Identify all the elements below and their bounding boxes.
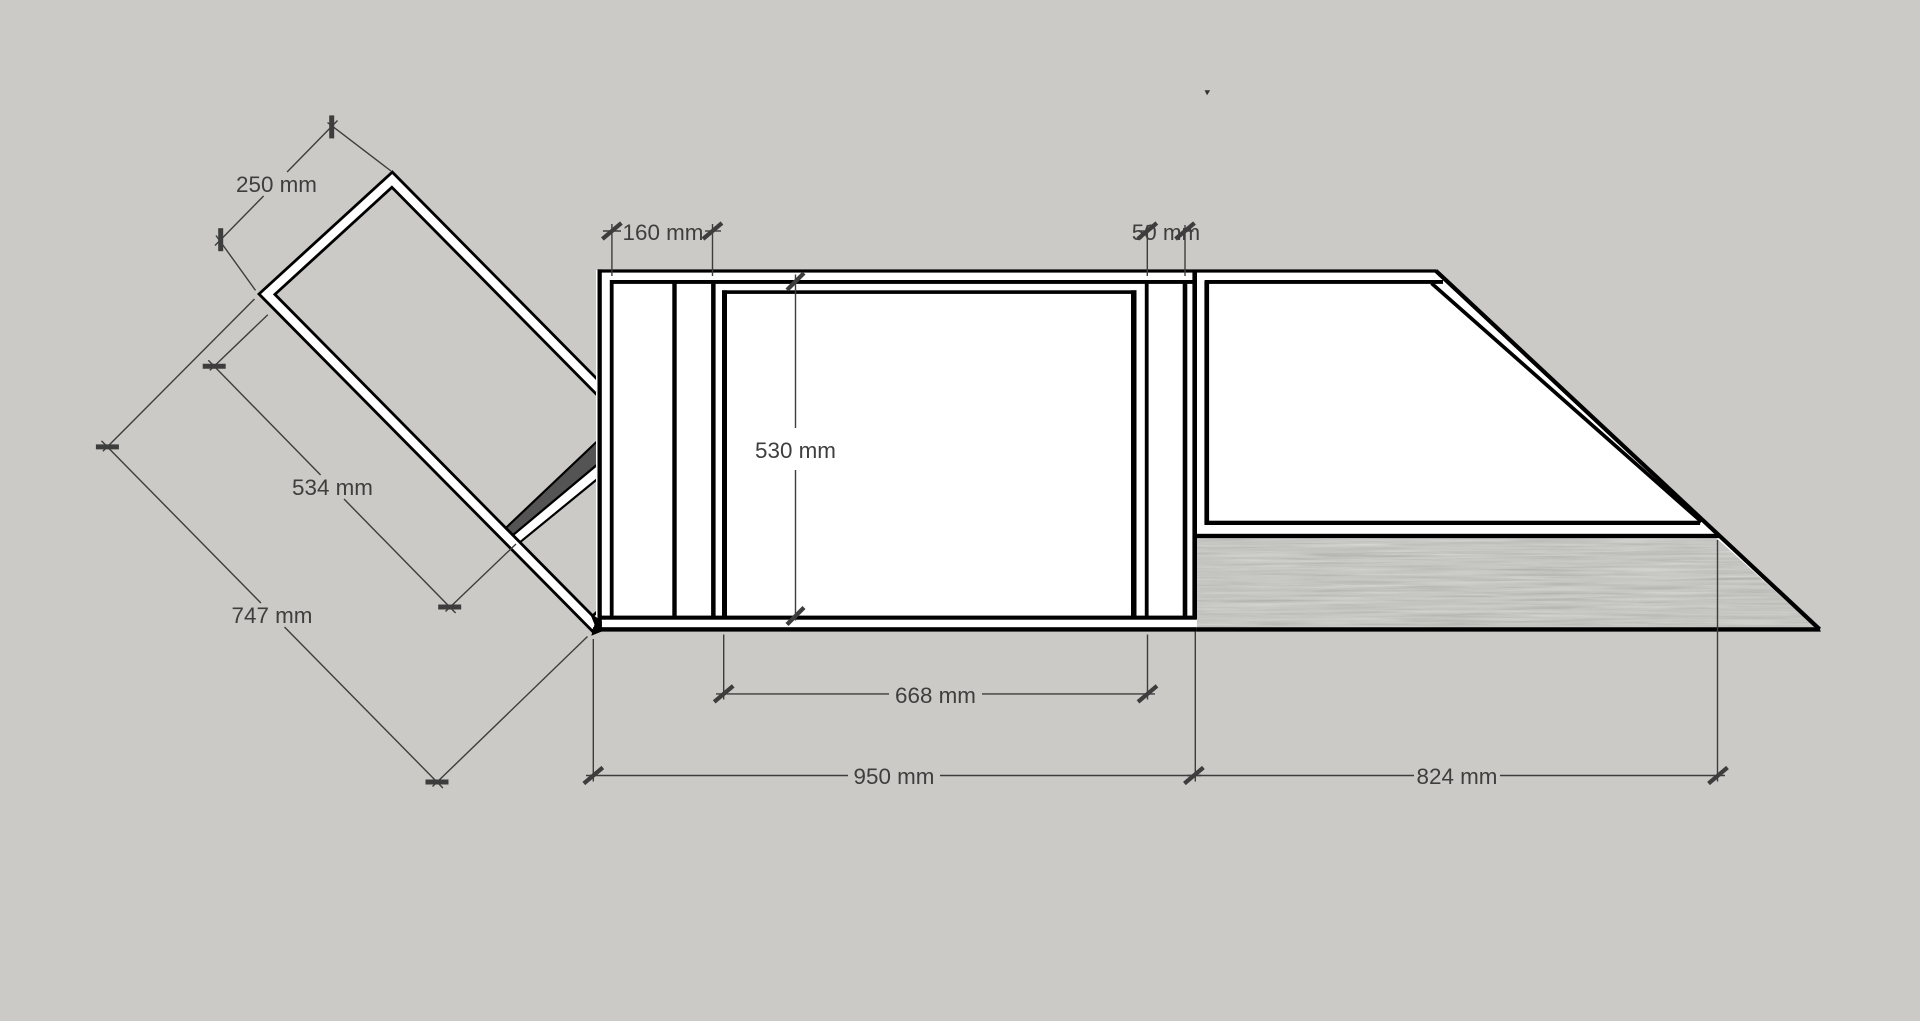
svg-text:824 mm: 824 mm <box>1417 764 1498 789</box>
svg-text:50 mm: 50 mm <box>1132 220 1200 245</box>
svg-text:530 mm: 530 mm <box>755 438 836 463</box>
svg-text:950 mm: 950 mm <box>854 764 935 789</box>
svg-text:160 mm: 160 mm <box>623 220 704 245</box>
svg-text:668 mm: 668 mm <box>895 683 976 708</box>
svg-text:534 mm: 534 mm <box>292 475 373 500</box>
svg-text:747 mm: 747 mm <box>232 603 313 628</box>
svg-text:250 mm: 250 mm <box>236 172 317 197</box>
